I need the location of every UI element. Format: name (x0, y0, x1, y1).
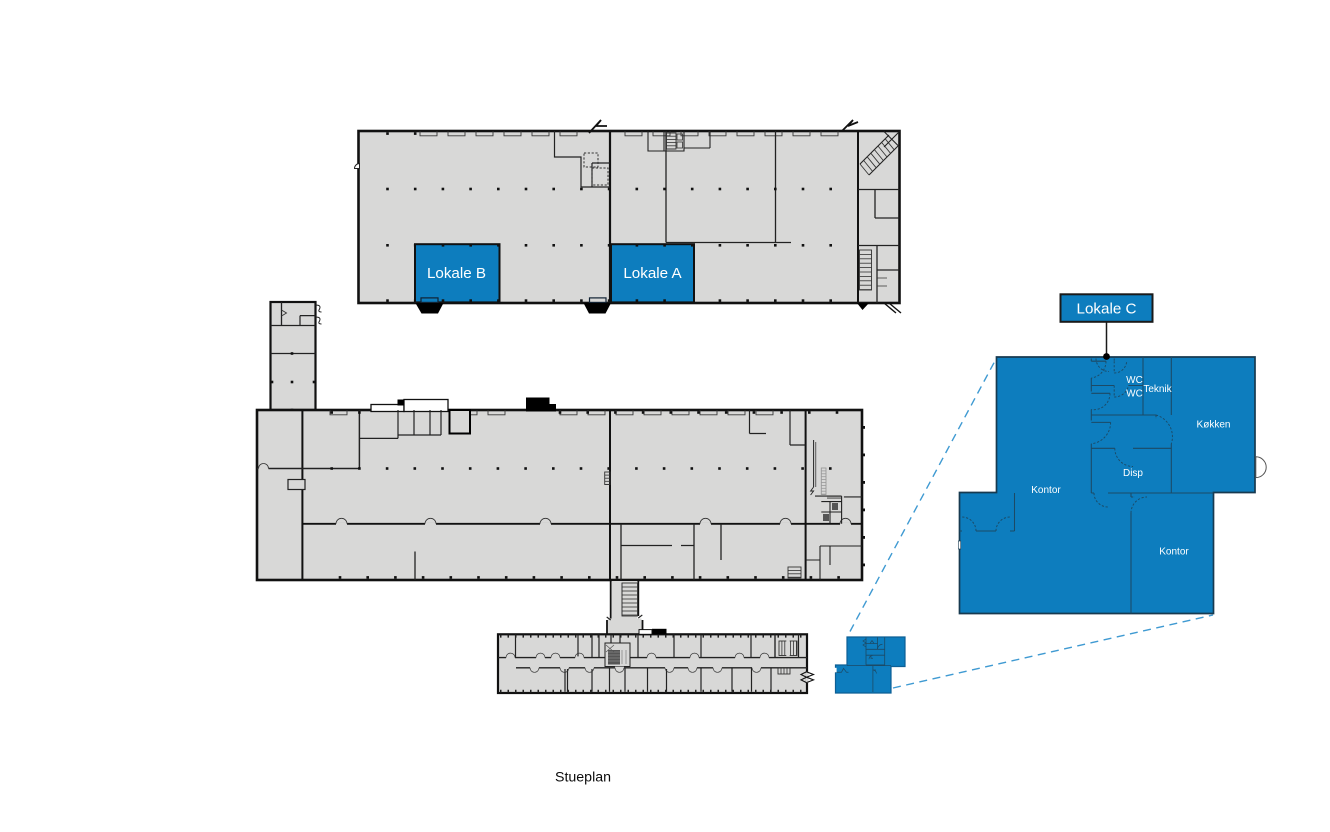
svg-text:Lokale B: Lokale B (427, 265, 486, 282)
svg-text:WC: WC (1126, 375, 1143, 386)
svg-text:Køkken: Køkken (1197, 420, 1231, 431)
svg-text:Kontor: Kontor (1031, 485, 1061, 496)
svg-text:Kontor: Kontor (1159, 547, 1189, 558)
svg-text:WC: WC (1126, 389, 1143, 400)
svg-text:Teknik: Teknik (1143, 384, 1172, 395)
svg-text:Stueplan: Stueplan (555, 770, 611, 786)
svg-text:Lokale A: Lokale A (623, 265, 682, 282)
svg-text:Disp: Disp (1123, 468, 1143, 479)
svg-text:Lokale C: Lokale C (1077, 301, 1137, 318)
